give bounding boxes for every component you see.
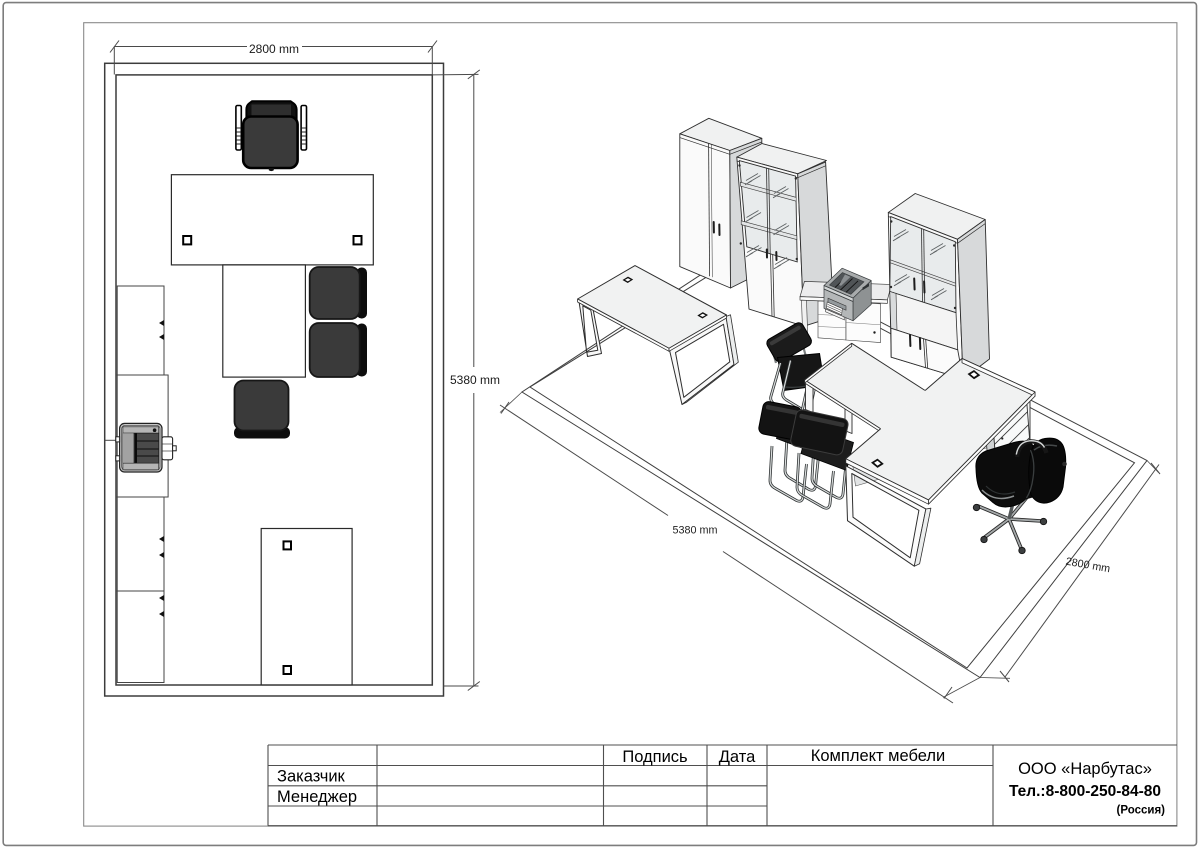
svg-text:ООО «Нарбутас»: ООО «Нарбутас»	[1018, 760, 1152, 778]
svg-text:2800 mm: 2800 mm	[249, 42, 299, 56]
svg-text:5380 mm: 5380 mm	[672, 525, 717, 537]
svg-text:Менеджер: Менеджер	[277, 788, 357, 806]
svg-text:Тел.:8-800-250-84-80: Тел.:8-800-250-84-80	[1009, 783, 1161, 800]
svg-text:(Россия): (Россия)	[1117, 805, 1166, 817]
svg-text:Заказчик: Заказчик	[277, 768, 346, 786]
svg-text:Комплект мебели: Комплект мебели	[811, 747, 946, 765]
svg-text:Подпись: Подпись	[622, 748, 687, 766]
svg-text:Дата: Дата	[719, 748, 756, 766]
svg-text:5380 mm: 5380 mm	[450, 373, 500, 387]
svg-text:2800 mm: 2800 mm	[1065, 556, 1111, 576]
